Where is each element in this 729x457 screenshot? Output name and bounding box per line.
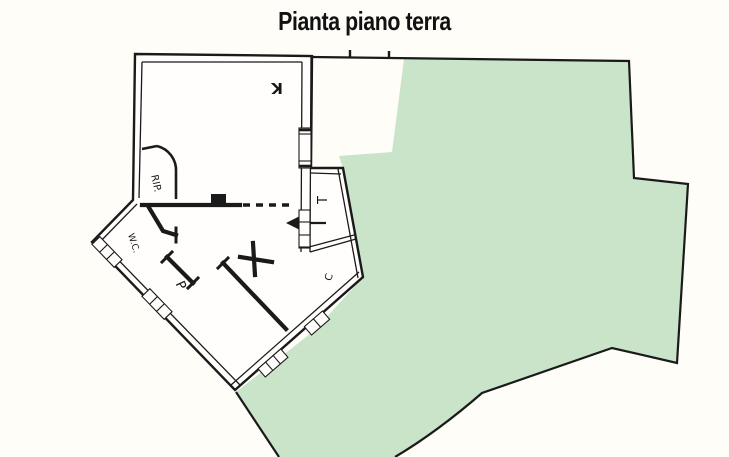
pillar <box>211 194 226 206</box>
terrace-label: T <box>316 196 331 205</box>
window-right-lower <box>299 210 310 248</box>
kitchen-label: K <box>270 79 283 97</box>
floorplan-page: Pianta piano terra <box>0 0 729 457</box>
floorplan-drawing: K RIP. W.C. P T C <box>0 0 729 457</box>
window-right-upper <box>299 128 311 168</box>
